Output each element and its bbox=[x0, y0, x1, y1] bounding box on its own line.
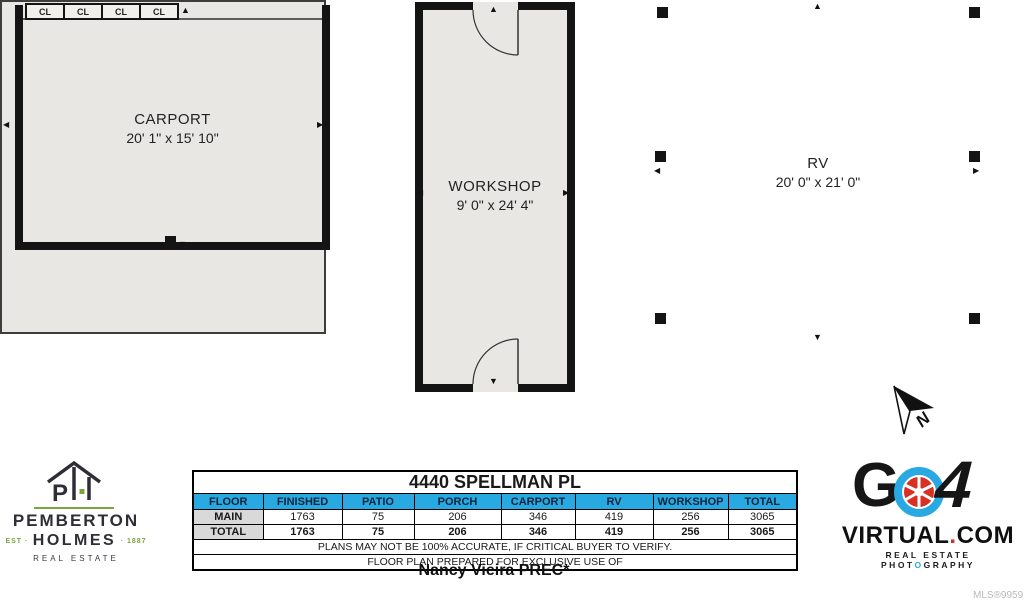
door-post-marker bbox=[165, 236, 176, 247]
up-arrow-marker: ▲ bbox=[813, 2, 822, 11]
disclaimer-note: PLANS MAY NOT BE 100% ACCURATE, IF CRITI… bbox=[193, 540, 797, 555]
holmes-wordmark: EST · HOLMES · 1887 bbox=[0, 532, 152, 550]
mls-number: MLS®995916 bbox=[973, 590, 1024, 601]
corner-post bbox=[969, 7, 980, 18]
room-name: RV bbox=[698, 155, 938, 174]
floor-cell: MAIN bbox=[193, 510, 263, 525]
real-estate-label: REAL ESTATE bbox=[0, 554, 152, 563]
value-cell: 256 bbox=[653, 510, 728, 525]
house-monogram-icon: P bbox=[44, 460, 104, 506]
carport-label: CARPORT 20' 1" x 15' 10" bbox=[40, 111, 305, 147]
holmes-label: HOLMES bbox=[33, 532, 116, 549]
right-arrow-marker: ▶ bbox=[563, 189, 569, 197]
col-header: CARPORT bbox=[501, 494, 575, 510]
closet-label: CL bbox=[115, 7, 127, 17]
value-cell: 206 bbox=[414, 510, 501, 525]
left-arrow-marker: ◀ bbox=[654, 167, 660, 175]
address-title: 4440 SPELLMAN PL bbox=[193, 471, 797, 494]
area-summary-table: 4440 SPELLMAN PL FLOOR FINISHED PATIO PO… bbox=[192, 470, 798, 571]
go4-letter-g: G bbox=[852, 450, 897, 521]
value-cell: 346 bbox=[501, 525, 575, 540]
left-arrow-marker: ◀ bbox=[417, 189, 423, 197]
down-arrow-marker: ▼ bbox=[813, 333, 822, 342]
go4-virtual-logo: G 4 VIRTUAL.COM REAL ESTATE PHOTOGRAPHY bbox=[838, 458, 1024, 568]
value-cell: 3065 bbox=[728, 510, 797, 525]
room-name: WORKSHOP bbox=[425, 178, 565, 197]
photography-tagline: REAL ESTATE PHOTOGRAPHY bbox=[838, 550, 1018, 570]
monogram-letter: P bbox=[52, 480, 68, 506]
col-header: PATIO bbox=[342, 494, 414, 510]
col-header: PORCH bbox=[414, 494, 501, 510]
north-label: N bbox=[912, 408, 934, 431]
closet-label: CL bbox=[77, 7, 89, 17]
value-cell: 1763 bbox=[263, 510, 342, 525]
value-cell: 3065 bbox=[728, 525, 797, 540]
corner-post bbox=[969, 313, 980, 324]
floor-plan-page: CL CL CL CL CARPORT 20' 1" x 15' 10" ▲ ◀… bbox=[0, 0, 1024, 605]
north-arrow: N bbox=[888, 381, 952, 439]
table-header-row: FLOOR FINISHED PATIO PORCH CARPORT RV WO… bbox=[193, 494, 797, 510]
closet-box: CL bbox=[139, 3, 179, 20]
mid-post bbox=[969, 151, 980, 162]
go4-digit-4: 4 bbox=[927, 446, 983, 522]
carport-closets: CL CL CL CL bbox=[25, 3, 179, 20]
down-arrow-marker: ▼ bbox=[489, 377, 498, 386]
table-row: TOTAL 1763 75 206 346 419 256 3065 bbox=[193, 525, 797, 540]
closet-box: CL bbox=[63, 3, 103, 20]
domain-dot: . bbox=[949, 522, 956, 549]
mid-post bbox=[655, 151, 666, 162]
value-cell: 419 bbox=[575, 510, 653, 525]
closet-label: CL bbox=[153, 7, 165, 17]
col-header: RV bbox=[575, 494, 653, 510]
up-arrow-marker: ▲ bbox=[489, 5, 498, 14]
table-row: MAIN 1763 75 206 346 419 256 3065 bbox=[193, 510, 797, 525]
room-dims: 20' 1" x 15' 10" bbox=[40, 130, 305, 148]
col-header: FINISHED bbox=[263, 494, 342, 510]
rv-label: RV 20' 0" x 21' 0" bbox=[698, 155, 938, 191]
room-name: CARPORT bbox=[40, 111, 305, 130]
value-cell: 346 bbox=[501, 510, 575, 525]
year-label: · 1887 bbox=[121, 538, 147, 545]
room-dims: 9' 0" x 24' 4" bbox=[425, 197, 565, 215]
value-cell: 206 bbox=[414, 525, 501, 540]
value-cell: 1763 bbox=[263, 525, 342, 540]
workshop-label: WORKSHOP 9' 0" x 24' 4" bbox=[425, 178, 565, 214]
col-header: TOTAL bbox=[728, 494, 797, 510]
value-cell: 75 bbox=[342, 510, 414, 525]
value-cell: 419 bbox=[575, 525, 653, 540]
right-arrow-marker: ▶ bbox=[317, 121, 323, 129]
closet-label: CL bbox=[39, 7, 51, 17]
room-dims: 20' 0" x 21' 0" bbox=[698, 174, 938, 192]
right-arrow-marker: ▶ bbox=[973, 167, 979, 175]
tagline-part: GRAPHY bbox=[924, 560, 975, 570]
closet-box: CL bbox=[101, 3, 141, 20]
virtual-com-wordmark: VIRTUAL.COM bbox=[838, 522, 1018, 550]
tagline-o: O bbox=[914, 560, 923, 570]
value-cell: 256 bbox=[653, 525, 728, 540]
down-arrow-marker: ▼ bbox=[178, 240, 187, 249]
domain-part: COM bbox=[957, 522, 1015, 549]
est-label: EST · bbox=[5, 538, 28, 545]
pemberton-holmes-logo: P PEMBERTON EST · HOLMES · 1887 REAL EST… bbox=[0, 458, 160, 570]
corner-post bbox=[657, 7, 668, 18]
value-cell: 75 bbox=[342, 525, 414, 540]
domain-part: VIRTUAL bbox=[842, 522, 950, 549]
up-arrow-marker: ▲ bbox=[181, 6, 190, 15]
corner-post bbox=[655, 313, 666, 324]
prepared-for-name: Nancy Vieira PREC* bbox=[192, 562, 796, 580]
floor-cell: TOTAL bbox=[193, 525, 263, 540]
col-header: FLOOR bbox=[193, 494, 263, 510]
left-arrow-marker: ◀ bbox=[3, 121, 9, 129]
logo-divider-line bbox=[34, 507, 114, 509]
closet-box: CL bbox=[25, 3, 65, 20]
col-header: WORKSHOP bbox=[653, 494, 728, 510]
pemberton-wordmark: PEMBERTON bbox=[0, 511, 152, 531]
